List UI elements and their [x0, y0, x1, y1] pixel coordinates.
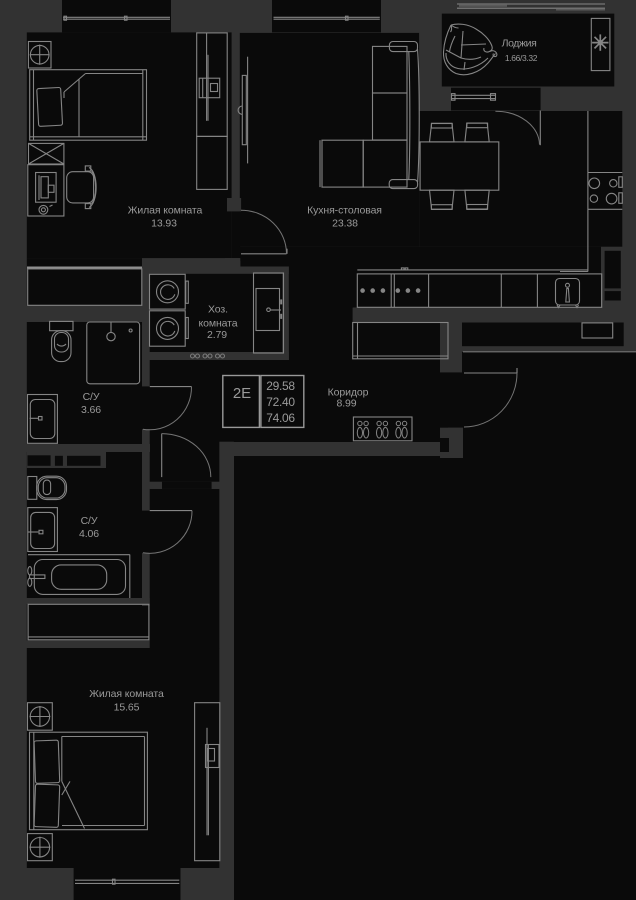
svg-text:2Е: 2Е [233, 385, 251, 402]
svg-text:Коридор: Коридор [328, 386, 369, 398]
svg-text:Кухня-столовая: Кухня-столовая [307, 205, 382, 217]
svg-text:13.93: 13.93 [151, 218, 177, 230]
svg-text:Хоз.: Хоз. [208, 304, 228, 316]
svg-text:4.06: 4.06 [79, 528, 99, 540]
svg-text:1.66/3.32: 1.66/3.32 [505, 53, 538, 63]
svg-text:Жилая комната: Жилая комната [128, 205, 203, 217]
svg-text:29.58: 29.58 [266, 379, 295, 393]
svg-text:2.79: 2.79 [207, 329, 227, 341]
svg-text:3.66: 3.66 [81, 404, 101, 416]
svg-text:комната: комната [198, 318, 237, 330]
svg-text:23.38: 23.38 [332, 218, 358, 230]
svg-text:С/У: С/У [83, 391, 100, 403]
svg-text:8.99: 8.99 [336, 398, 356, 410]
svg-text:С/У: С/У [81, 515, 98, 527]
svg-text:Жилая комната: Жилая комната [89, 688, 164, 700]
svg-text:Лоджия: Лоджия [502, 38, 537, 50]
svg-text:74.06: 74.06 [266, 411, 295, 425]
svg-text:72.40: 72.40 [266, 395, 295, 409]
svg-text:15.65: 15.65 [114, 702, 140, 714]
